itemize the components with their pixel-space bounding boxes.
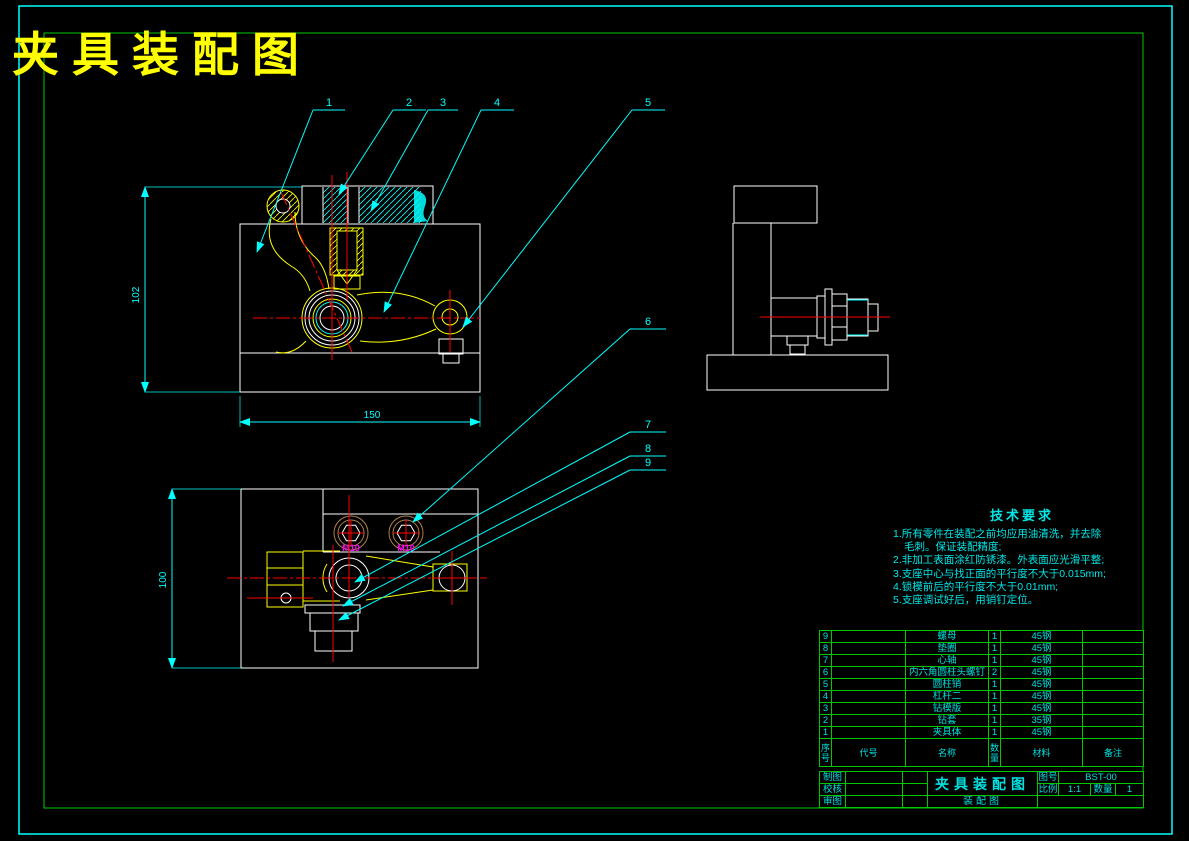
drawn-label: 制图 (820, 772, 846, 784)
leader-number-8: 8 (645, 443, 651, 455)
plan-lever (267, 551, 467, 607)
bom-header-qty: 数量 (989, 739, 1001, 767)
tech-requirements-title: 技术要求 (893, 505, 1151, 524)
leader-number-3: 3 (440, 97, 446, 109)
scale-label: 比例 (1038, 784, 1059, 796)
side-view (707, 186, 890, 390)
bom-header-code: 代号 (832, 739, 906, 767)
bom-header-note: 备注 (1083, 739, 1144, 767)
table-row: 3钻模版145钢 (820, 703, 1144, 715)
tech-requirement-line: 3.支座中心与找正面的平行度不大于0.015mm; (893, 568, 1151, 581)
technical-requirements: 技术要求 1.所有零件在装配之前均应用油清洗，并去除 毛刺。保证装配精度; 2.… (893, 505, 1151, 607)
lever-lobe (267, 190, 299, 222)
dim-front-width: 150 (240, 396, 480, 427)
bom-header-name: 名称 (906, 739, 989, 767)
qty-value: 1 (1116, 784, 1144, 796)
tech-requirement-line: 2.非加工表面涂红防锈漆。外表面应光滑平整; (893, 554, 1151, 567)
bom-header-material: 材料 (1001, 739, 1083, 767)
drawing-title: 夹具装配图 (928, 772, 1038, 796)
scale-value: 1:1 (1059, 784, 1091, 796)
table-row: 6内六角圆柱头螺钉245钢 (820, 667, 1144, 679)
leader-6: 6 (413, 316, 666, 522)
cad-viewport: 102 150 M10 M10 (0, 0, 1189, 841)
dim-text-front-height: 102 (131, 286, 142, 303)
section-blob (414, 190, 428, 223)
bom-table: 9螺母145钢 8垫圈145钢 7心轴145钢 6内六角圆柱头螺钉245钢 5圆… (819, 630, 1144, 767)
bom-header-index: 序号 (820, 739, 832, 767)
leader-5: 5 (463, 97, 665, 327)
thread-label-left: M10 (342, 543, 360, 553)
leader-7: 7 (355, 419, 666, 582)
leader-callouts: 1 2 3 4 5 6 7 8 9 (257, 97, 666, 620)
leader-number-7: 7 (645, 419, 651, 431)
title-block: 制图 夹具装配图 图号 BST-00 校核 比例 1:1 数量 1 审图 装配图 (819, 771, 1144, 808)
table-row: 4杠杆二145钢 (820, 691, 1144, 703)
leader-number-2: 2 (406, 97, 412, 109)
page-title: 夹具装配图 (12, 16, 312, 85)
bom-header-row: 序号 代号 名称 数量 材料 备注 (820, 739, 1144, 767)
tech-requirement-line: 4.锁模前后的平行度不大于0.01mm; (893, 581, 1151, 594)
table-row: 1夹具体145钢 (820, 727, 1144, 739)
table-row: 8垫圈145钢 (820, 643, 1144, 655)
checked-label: 校核 (820, 784, 846, 796)
leader-9: 9 (339, 457, 666, 620)
approved-label: 审图 (820, 796, 846, 808)
drawing-no-label: 图号 (1038, 772, 1059, 784)
leader-number-9: 9 (645, 457, 651, 469)
leader-number-6: 6 (645, 316, 651, 328)
qty-label: 数量 (1091, 784, 1116, 796)
leader-number-5: 5 (645, 97, 651, 109)
dim-text-front-width: 150 (364, 410, 381, 421)
table-row: 2钻套135钢 (820, 715, 1144, 727)
cap-screw-left: M10 (334, 516, 368, 553)
tech-requirement-line: 1.所有零件在装配之前均应用油清洗，并去除 (893, 528, 1151, 541)
drawing-subtitle: 装配图 (928, 796, 1038, 808)
leader-number-1: 1 (326, 97, 332, 109)
table-row: 5圆柱销145钢 (820, 679, 1144, 691)
tech-requirement-line: 毛刺。保证装配精度; (904, 541, 1151, 554)
drawing-no: BST-00 (1059, 772, 1144, 784)
plan-view: M10 M10 (227, 489, 487, 668)
plan-centerlines (227, 495, 487, 662)
table-row: 9螺母145钢 (820, 631, 1144, 643)
thread-label-right: M10 (397, 543, 415, 553)
dim-text-plan-height: 100 (158, 571, 169, 588)
leader-number-4: 4 (494, 97, 500, 109)
table-row: 7心轴145钢 (820, 655, 1144, 667)
leader-2: 2 (339, 97, 426, 194)
tech-requirement-line: 5.支座调试好后，用销钉定位。 (893, 594, 1151, 607)
